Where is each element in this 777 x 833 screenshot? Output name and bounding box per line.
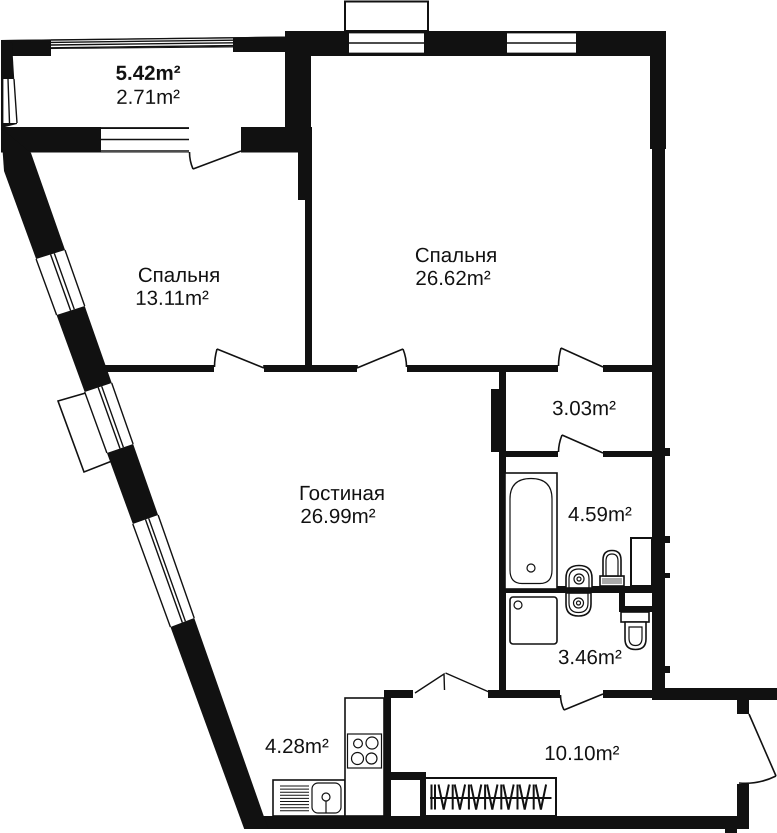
svg-text:13.11m²: 13.11m² [135,287,209,310]
svg-text:3.46m²: 3.46m² [558,646,622,669]
svg-text:4.28m²: 4.28m² [265,735,329,758]
svg-text:2.71m²: 2.71m² [116,86,180,109]
svg-text:Гостиная: Гостиная [299,482,385,505]
svg-text:10.10m²: 10.10m² [544,742,619,765]
svg-text:26.99m²: 26.99m² [300,505,375,528]
svg-text:26.62m²: 26.62m² [415,267,490,290]
svg-text:4.59m²: 4.59m² [568,503,632,526]
svg-text:Спальня: Спальня [415,244,497,267]
svg-text:3.03m²: 3.03m² [552,397,616,420]
svg-text:5.42m²: 5.42m² [116,62,181,85]
svg-text:Спальня: Спальня [138,264,220,287]
